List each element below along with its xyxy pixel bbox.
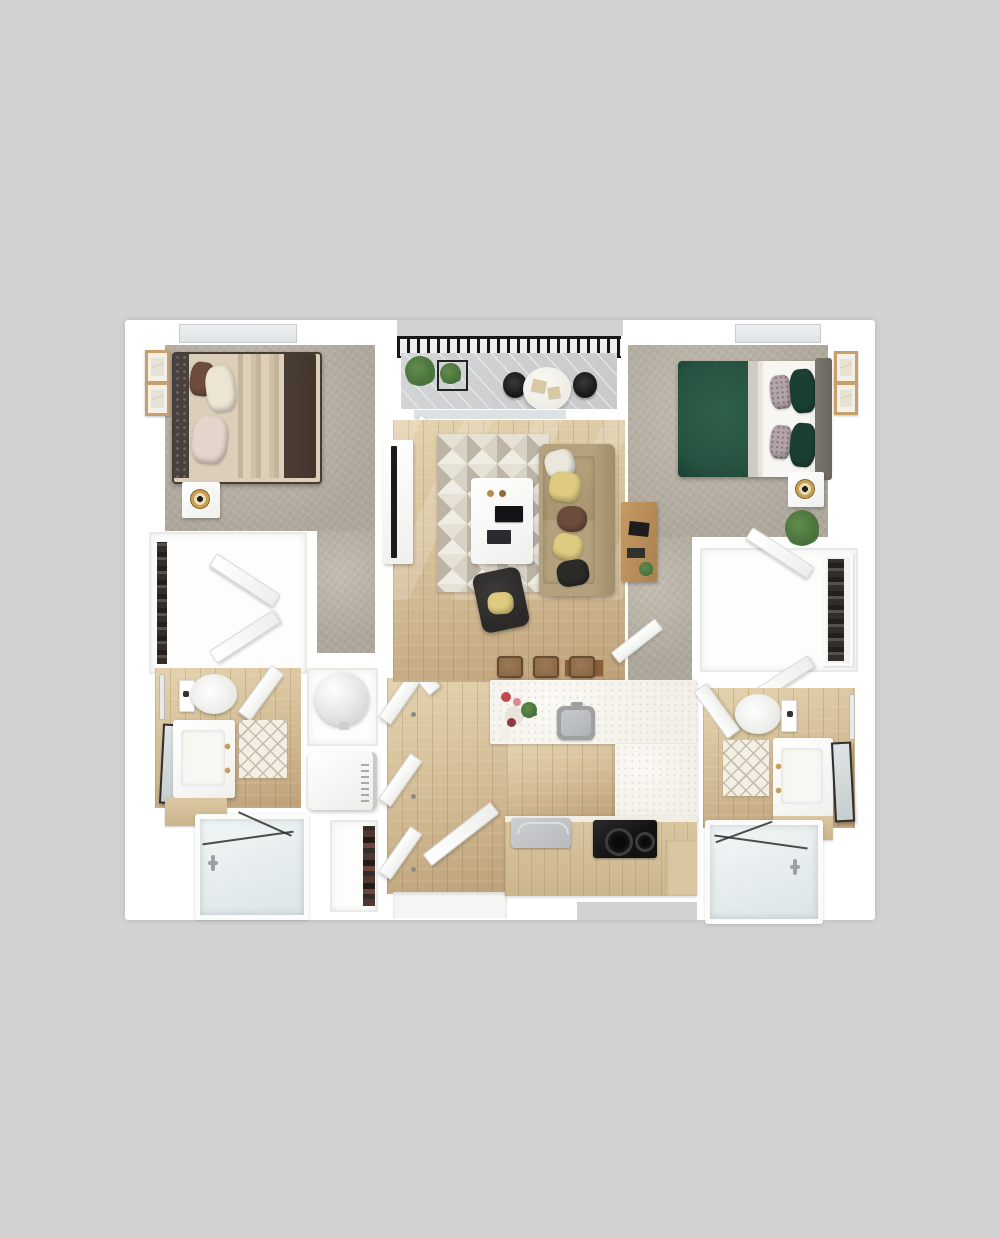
bathtub [195, 814, 309, 920]
flower-icon [501, 692, 511, 702]
tub-faucet-icon [793, 859, 797, 875]
balcony-plant-icon [440, 363, 461, 384]
bar-stool [533, 656, 559, 678]
balcony-recess [397, 320, 623, 336]
toilet-bowl [191, 674, 237, 714]
cooktop [593, 820, 657, 858]
patio-chair [573, 372, 597, 398]
entry-threshold [393, 892, 507, 918]
bar-stool [497, 656, 523, 678]
coffee-table [471, 478, 533, 564]
wall-art [834, 382, 858, 415]
bathtub [705, 820, 823, 924]
shower-glass-edge [202, 831, 293, 846]
headboard [815, 358, 832, 480]
table-setting [547, 386, 561, 399]
book [495, 506, 523, 522]
wall-art [834, 351, 858, 384]
shelf-unit [823, 554, 853, 666]
closet-rod-clothes [157, 542, 167, 664]
cabinet-step [665, 840, 697, 896]
pillow [547, 470, 583, 504]
apartment-floor-plan [125, 320, 875, 920]
plant-basket [437, 360, 468, 391]
bedroom1-carpet [317, 531, 375, 653]
cup-icon [499, 490, 506, 497]
toilet [735, 692, 797, 738]
bath-rug [239, 720, 287, 778]
faucet-icon [225, 768, 230, 773]
heater-pipe [339, 722, 349, 730]
pillow [190, 414, 231, 466]
burner-icon [605, 828, 633, 856]
bed [678, 361, 830, 477]
pillow [788, 422, 817, 468]
washer-dryer [308, 752, 377, 810]
door-handle [411, 867, 416, 872]
water-heater [315, 672, 369, 726]
wall-art [145, 350, 170, 384]
book [487, 530, 511, 544]
balcony-plant-icon [405, 356, 435, 386]
toilet-bowl [735, 694, 781, 734]
floor-plan-image [0, 0, 1000, 1238]
faucet-icon [776, 788, 781, 793]
bed-blanket [238, 354, 286, 478]
sofa [539, 444, 615, 596]
flower-icon [513, 698, 521, 706]
door-handle [411, 712, 416, 717]
vanity [173, 720, 235, 798]
leaves-icon [521, 702, 537, 718]
leaning-mirror [831, 742, 855, 823]
door-handle [411, 794, 416, 799]
exterior-notch [577, 902, 697, 920]
patio-table [523, 367, 571, 411]
faucet-icon [225, 744, 230, 749]
sink-basin [181, 730, 225, 786]
laptop-icon [628, 521, 649, 537]
pillow [203, 364, 238, 413]
appliance-handle [517, 822, 569, 834]
flush-button [183, 691, 189, 697]
bar-stool [569, 656, 595, 678]
pillow [487, 591, 514, 614]
window [733, 322, 823, 345]
sliding-glass-door [413, 409, 567, 420]
green-comforter [678, 361, 754, 477]
faucet-icon [571, 702, 583, 706]
island-decor [499, 690, 543, 740]
bath-rug [723, 740, 769, 796]
dishwasher [511, 818, 571, 848]
sink-basin [561, 710, 591, 736]
headboard [174, 354, 189, 478]
plate [499, 728, 511, 740]
towel-bar [849, 694, 855, 740]
wall-art [145, 382, 170, 416]
flower-icon [507, 718, 516, 727]
desk-plant-icon [639, 562, 653, 576]
lamp-icon [794, 478, 816, 500]
table-setting [531, 379, 547, 394]
lamp-icon [189, 488, 211, 510]
flush-button [787, 711, 793, 717]
book [627, 548, 645, 558]
vanity [773, 738, 833, 818]
bed-duvet [284, 354, 316, 478]
bed [172, 352, 322, 484]
burner-icon [635, 832, 655, 852]
media-console [383, 440, 413, 564]
potted-plant-icon [785, 510, 819, 546]
cup-icon [487, 490, 494, 497]
pillow [557, 506, 587, 532]
kitchen-sink [557, 706, 595, 740]
pantry-shelves [363, 826, 375, 906]
faucet-icon [776, 764, 781, 769]
kitchen-floor [507, 744, 615, 818]
tub-faucet-icon [211, 855, 215, 871]
shelf-clothes [828, 559, 844, 661]
desk [621, 502, 657, 582]
tv-icon [391, 446, 397, 558]
pillow [788, 368, 817, 414]
window [177, 322, 299, 345]
towel-bar [159, 674, 165, 720]
sink-basin [781, 748, 823, 804]
pillow [555, 557, 591, 588]
peninsula-counter [615, 744, 697, 822]
toilet [179, 672, 243, 718]
shower-glass-edge [238, 811, 292, 836]
